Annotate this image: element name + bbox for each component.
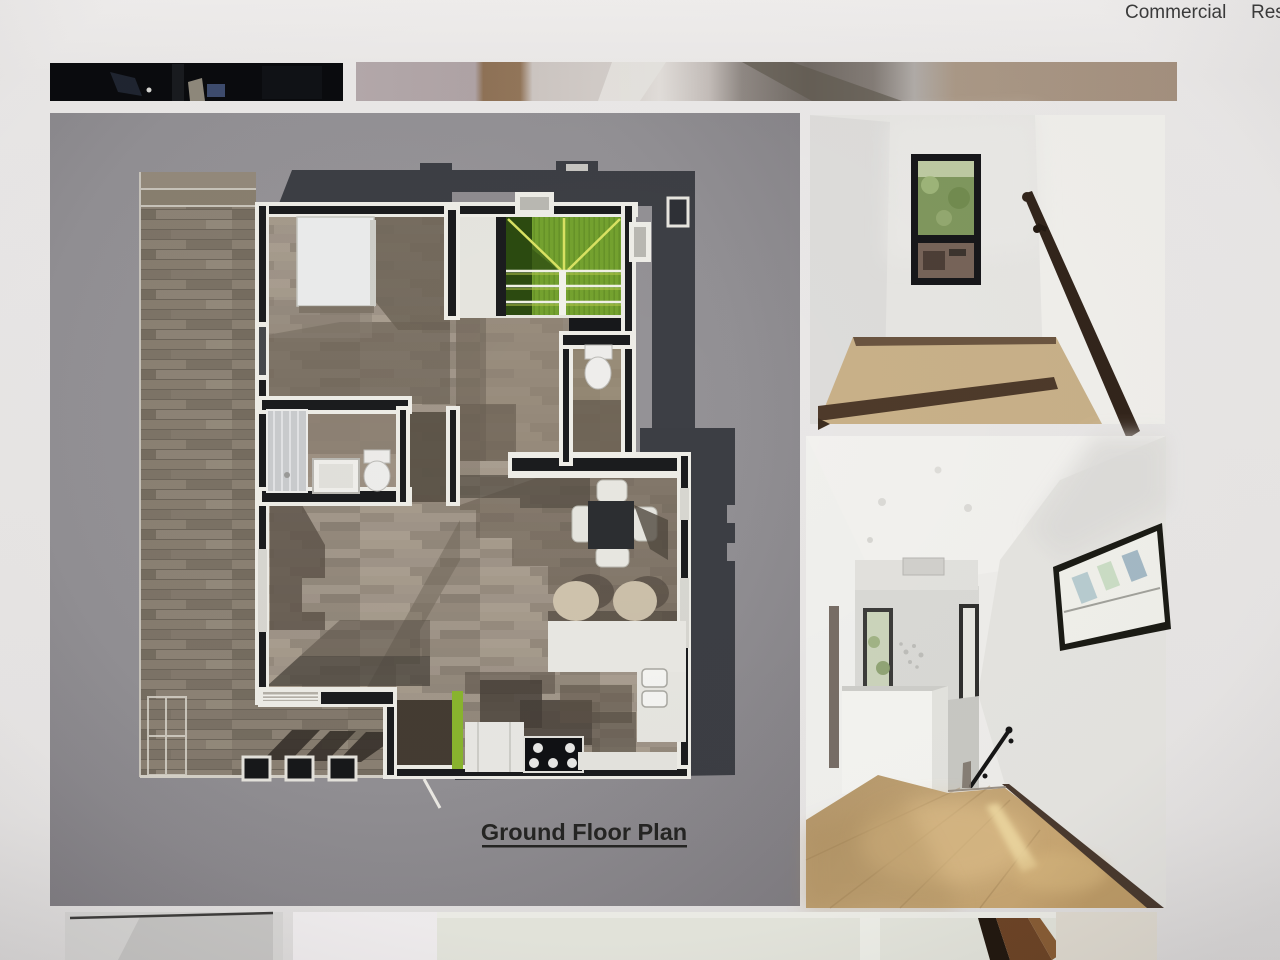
svg-text:Res: Res	[1251, 2, 1280, 23]
svg-text:Commercial: Commercial	[1125, 2, 1226, 23]
svg-text:Ground Floor Plan: Ground Floor Plan	[481, 819, 687, 845]
